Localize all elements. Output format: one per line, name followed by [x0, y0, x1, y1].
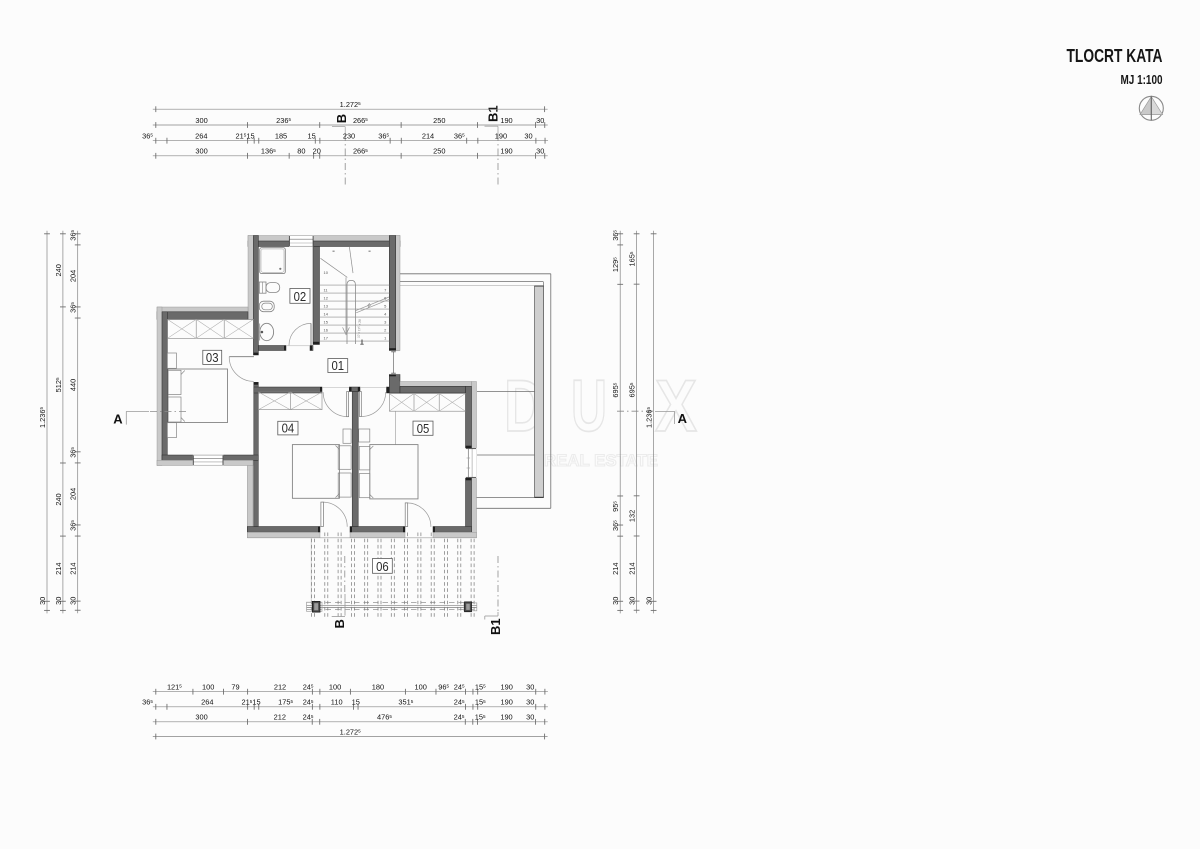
svg-text:U: U — [571, 366, 607, 447]
svg-text:15: 15 — [246, 132, 254, 141]
svg-text:16: 16 — [324, 327, 329, 332]
svg-text:204: 204 — [69, 270, 78, 282]
svg-text:10: 10 — [324, 270, 329, 275]
svg-text:14: 14 — [324, 311, 329, 316]
svg-text:440: 440 — [69, 379, 78, 391]
svg-text:300: 300 — [195, 147, 207, 156]
svg-text:212: 212 — [274, 713, 286, 722]
svg-text:214: 214 — [611, 563, 620, 575]
svg-text:190: 190 — [500, 713, 512, 722]
svg-text:TLOCRT KATA: TLOCRT KATA — [1067, 46, 1163, 66]
svg-text:100: 100 — [202, 683, 214, 692]
svg-text:30: 30 — [69, 597, 78, 605]
svg-text:B1: B1 — [488, 618, 503, 635]
svg-text:X: X — [655, 366, 697, 447]
svg-text:15: 15 — [352, 698, 360, 707]
svg-text:80: 80 — [297, 147, 305, 156]
svg-text:12: 12 — [324, 295, 329, 300]
svg-text:300: 300 — [195, 116, 207, 125]
svg-text:240: 240 — [54, 493, 63, 505]
svg-text:15: 15 — [252, 698, 260, 707]
svg-text:240: 240 — [54, 264, 63, 276]
svg-text:03: 03 — [206, 350, 219, 365]
svg-text:15: 15 — [307, 132, 315, 141]
svg-text:100: 100 — [415, 683, 427, 692]
svg-text:A: A — [113, 412, 123, 427]
svg-text:212: 212 — [274, 683, 286, 692]
svg-text:01: 01 — [332, 358, 345, 373]
svg-text:30: 30 — [526, 698, 534, 707]
svg-text:30: 30 — [526, 683, 534, 692]
svg-text:190: 190 — [500, 147, 512, 156]
svg-text:250: 250 — [433, 147, 445, 156]
svg-text:30: 30 — [536, 116, 544, 125]
svg-text:264: 264 — [195, 132, 207, 141]
svg-text:30: 30 — [54, 597, 63, 605]
svg-text:1.2725: 1.2725 — [340, 100, 362, 109]
svg-text:264: 264 — [201, 698, 213, 707]
svg-text:132: 132 — [628, 510, 637, 522]
svg-text:30: 30 — [526, 713, 534, 722]
svg-text:REAL ESTATE: REAL ESTATE — [544, 451, 658, 470]
svg-text:230: 230 — [343, 132, 355, 141]
svg-text:B: B — [334, 114, 349, 123]
svg-text:30: 30 — [38, 597, 47, 605]
svg-text:214: 214 — [628, 562, 637, 574]
svg-text:B1: B1 — [486, 105, 501, 122]
svg-text:110: 110 — [331, 698, 343, 707]
svg-text:30: 30 — [628, 597, 637, 605]
svg-text:100: 100 — [329, 683, 341, 692]
svg-text:190: 190 — [500, 116, 512, 125]
svg-text:B: B — [332, 619, 347, 628]
svg-text:190: 190 — [495, 132, 507, 141]
svg-text:A: A — [678, 411, 688, 426]
svg-text:1.2365: 1.2365 — [38, 407, 47, 429]
svg-text:214: 214 — [69, 562, 78, 574]
svg-text:79: 79 — [231, 683, 239, 692]
svg-text:17: 17 — [324, 335, 329, 340]
svg-text:204: 204 — [69, 488, 78, 500]
svg-text:30: 30 — [611, 597, 620, 605]
svg-text:214: 214 — [422, 132, 434, 141]
svg-text:300: 300 — [195, 713, 207, 722]
svg-text:20: 20 — [313, 147, 321, 156]
svg-text:185: 185 — [275, 132, 287, 141]
svg-text:05: 05 — [417, 421, 430, 436]
svg-text:250: 250 — [433, 116, 445, 125]
svg-text:190: 190 — [501, 698, 513, 707]
svg-text:1.2365: 1.2365 — [645, 407, 654, 429]
svg-text:04: 04 — [282, 421, 295, 436]
svg-text:214: 214 — [54, 563, 63, 575]
svg-text:06: 06 — [376, 559, 389, 574]
svg-text:180: 180 — [372, 683, 384, 692]
svg-text:190: 190 — [501, 683, 513, 692]
svg-text:30: 30 — [536, 147, 544, 156]
svg-text:13: 13 — [324, 303, 329, 308]
svg-text:1.2725: 1.2725 — [340, 727, 362, 736]
svg-text:MJ 1:100: MJ 1:100 — [1121, 73, 1163, 87]
svg-text:30: 30 — [645, 597, 654, 605]
svg-text:30: 30 — [524, 132, 532, 141]
svg-text:02: 02 — [294, 289, 307, 304]
svg-text:15: 15 — [324, 319, 329, 324]
